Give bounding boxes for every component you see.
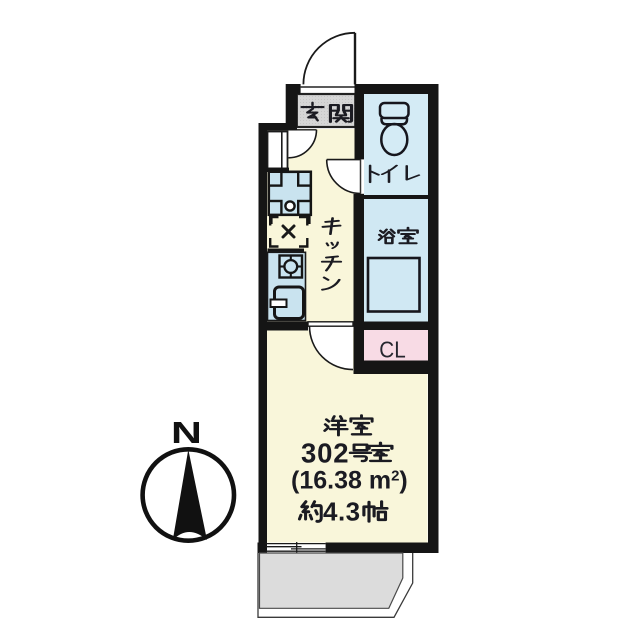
svg-text:N: N: [171, 415, 202, 450]
svg-text:4.3: 4.3: [323, 497, 361, 527]
svg-text:CL: CL: [379, 336, 405, 363]
svg-text:302: 302: [301, 437, 349, 468]
svg-text:(16.38 m2): (16.38 m2): [291, 467, 408, 495]
